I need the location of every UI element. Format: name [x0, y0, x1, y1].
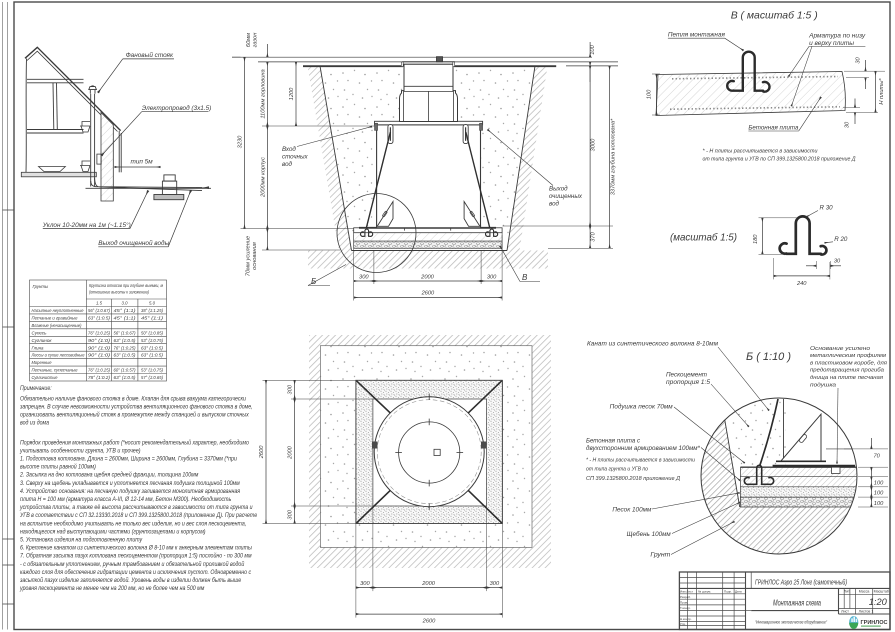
svg-text:2000: 2000 [421, 581, 435, 587]
svg-text:Пескоцемент: Пескоцемент [666, 372, 707, 379]
svg-text:Пров.: Пров. [680, 600, 688, 604]
svg-text:30: 30 [856, 57, 862, 64]
svg-text:300: 300 [487, 275, 497, 281]
svg-text:тип 5м: тип 5м [131, 159, 154, 166]
svg-text:высоте плиты равной 100мм): высоте плиты равной 100мм) [20, 463, 96, 471]
svg-text:60мм: 60мм [246, 33, 252, 47]
svg-text:Порядок проведения монтажных р: Порядок проведения монтажных работ (*нос… [20, 439, 249, 447]
svg-text:на всплытие необходимо учитыв: на всплытие необходимо учитывать не толь… [20, 521, 246, 527]
svg-text:вод: вод [282, 161, 293, 168]
svg-text:370: 370 [590, 231, 596, 241]
svg-text:30: 30 [844, 121, 850, 128]
svg-text:и верху плиты: и верху плиты [809, 40, 854, 47]
svg-text:двухсторонним армированием 100: двухсторонним армированием 100мм* [586, 445, 701, 452]
svg-text:2600: 2600 [421, 291, 435, 297]
svg-text:В ( масштаб 1:5 ): В ( масштаб 1:5 ) [731, 9, 818, 21]
svg-text:Подп.: Подп. [724, 589, 732, 593]
svg-text:78° (1:0.2): 78° (1:0.2) [88, 375, 111, 380]
svg-text:Выход очищенной воды: Выход очищенной воды [98, 239, 169, 247]
svg-text:№ докум.: № докум. [698, 589, 711, 593]
svg-text:подушка: подушка [810, 382, 837, 388]
svg-text:* - Н плиты рассчитывается в з: * - Н плиты рассчитывается в зависимости [586, 457, 695, 463]
svg-text:Лессы и сухие лессовидные: Лессы и сухие лессовидные [31, 353, 86, 358]
svg-text:Песок 100мм: Песок 100мм [612, 506, 652, 513]
svg-text:Грунт: Грунт [650, 552, 670, 559]
svg-text:уровня пескоцемента не менее ч: уровня пескоцемента не менее чем на 200 … [19, 586, 204, 592]
svg-text:запрещен. В случае невозможнос: запрещен. В случае невозможности устройс… [19, 403, 253, 411]
svg-text:5.0: 5.0 [149, 301, 156, 306]
svg-text:3000: 3000 [590, 138, 596, 151]
svg-text:предотвращения прогиба: предотвращения прогиба [810, 368, 885, 374]
svg-text:вод: вод [549, 201, 560, 208]
svg-text:300: 300 [288, 384, 294, 394]
svg-text:Масштаб: Масштаб [874, 590, 889, 594]
svg-text:100: 100 [874, 480, 884, 486]
svg-text:70: 70 [874, 453, 881, 459]
svg-text:УГВ в соответствии с СП 32.133: УГВ в соответствии с СП 32.13330.2018 и … [19, 513, 257, 519]
svg-text:учитывать особенности грунта,: учитывать особенности грунта, УГВ и проч… [19, 448, 141, 454]
svg-text:3230: 3230 [238, 135, 244, 148]
svg-text:"Инновационное экологическое о: "Инновационное экологическое оборудовани… [755, 619, 827, 624]
svg-text:90° (1:0): 90° (1:0) [88, 338, 111, 343]
svg-text:Петля монтажная: Петля монтажная [668, 32, 726, 39]
svg-text:63° (1:0.5): 63° (1:0.5) [141, 353, 164, 358]
svg-text:в пластиковом коробе, для: в пластиковом коробе, для [810, 360, 888, 366]
svg-text:1200: 1200 [289, 87, 295, 100]
svg-text:38° (1:1.25): 38° (1:1.25) [141, 308, 164, 313]
svg-text:100: 100 [874, 501, 884, 507]
svg-text:Суглинистые: Суглинистые [32, 375, 59, 380]
svg-text:7. Обратная засыпка пазух котл: 7. Обратная засыпка пазух котлована песк… [20, 552, 252, 560]
svg-text:1. Подготовка котлована. Длина: 1. Подготовка котлована. Длина = 2600мм,… [20, 456, 238, 462]
svg-text:Бетонная плита с: Бетонная плита с [586, 437, 641, 444]
svg-text:вод из дома: вод из дома [20, 420, 49, 426]
svg-text:56° (1:0.67): 56° (1:0.67) [114, 330, 137, 335]
svg-text:плита Н = 100 мм (арматура кла: плита Н = 100 мм (арматура класса А-III,… [20, 497, 231, 503]
svg-text:6. Крепление канатом из синтет: 6. Крепление канатом из синтетического в… [20, 545, 253, 551]
svg-text:300: 300 [359, 275, 369, 281]
svg-text:Выход: Выход [549, 186, 568, 193]
svg-text:Б ( 1:10 ): Б ( 1:10 ) [746, 351, 791, 363]
svg-text:50° (1:0.85): 50° (1:0.85) [141, 330, 164, 335]
svg-text:от типа грунта и УГВ по: от типа грунта и УГВ по [586, 467, 648, 473]
svg-text:300: 300 [490, 581, 500, 587]
svg-text:4. Устройство основания: на пе: 4. Устройство основания: на песчаную под… [20, 488, 240, 496]
svg-text:пропорция 1:5: пропорция 1:5 [666, 379, 711, 386]
svg-text:очищенных: очищенных [549, 193, 583, 200]
svg-text:Утв.: Утв. [680, 622, 686, 626]
svg-text:2000мм корпус: 2000мм корпус [261, 157, 267, 198]
svg-text:Монтажная схема: Монтажная схема [773, 598, 821, 607]
svg-text:Изм.Лист: Изм.Лист [680, 589, 694, 593]
svg-text:300: 300 [288, 509, 294, 519]
svg-text:300: 300 [360, 581, 370, 587]
svg-text:Насыпные неуплотненные: Насыпные неуплотненные [32, 308, 85, 313]
svg-text:76° (1:0.25): 76° (1:0.25) [88, 368, 111, 373]
svg-text:Подушка песок 70мм: Подушка песок 70мм [610, 403, 674, 410]
svg-text:Уклон 10-20мм на 1м (~1.15°): Уклон 10-20мм на 1м (~1.15°) [42, 221, 131, 229]
svg-text:63° (1:0.5): 63° (1:0.5) [114, 353, 137, 358]
svg-text:3.0: 3.0 [122, 301, 129, 306]
svg-text:каждого слоя для обеспечения г: каждого слоя для обеспечения гидратации … [20, 570, 251, 576]
svg-text:30: 30 [834, 258, 841, 264]
svg-text:Канат из синтетического волокн: Канат из синтетического волокна 8-10мм [587, 341, 719, 348]
svg-text:Песчаные, супесчаные: Песчаные, супесчаные [32, 368, 79, 373]
svg-text:засыпкой пазух изделие заполня: засыпкой пазух изделие заполняется водой… [19, 577, 241, 585]
svg-text:70мм усиление: 70мм усиление [246, 236, 252, 276]
svg-text:3. Сверху на щебень укладывает: 3. Сверху на щебень укладывается и уплот… [20, 479, 240, 487]
svg-text:100: 100 [590, 44, 596, 54]
svg-text:СП 399.1325800.2018 приложение: СП 399.1325800.2018 приложение Д [586, 476, 681, 482]
svg-text:(масштаб 1:5): (масштаб 1:5) [670, 232, 737, 244]
svg-text:76° (1:0.25): 76° (1:0.25) [88, 330, 111, 335]
svg-text:63° (1:0.5): 63° (1:0.5) [114, 338, 137, 343]
svg-text:53° (1:0.75): 53° (1:0.75) [141, 368, 164, 373]
svg-text:Арматура по низу: Арматура по низу [808, 33, 866, 40]
svg-text:2600: 2600 [259, 445, 265, 459]
svg-text:100: 100 [874, 491, 884, 497]
svg-text:R 20: R 20 [834, 236, 848, 243]
svg-text:45° (1:1): 45° (1:1) [141, 316, 164, 321]
svg-text:Суглинок: Суглинок [32, 338, 53, 343]
svg-text:R 30: R 30 [820, 205, 834, 212]
svg-text:180: 180 [753, 234, 759, 244]
svg-text:Крутизна откосов при глубине в: Крутизна откосов при глубине выемки, м [89, 283, 163, 288]
svg-text:2600: 2600 [422, 618, 436, 624]
svg-text:45° (1:1): 45° (1:1) [114, 308, 137, 313]
svg-text:Супесь: Супесь [32, 330, 48, 335]
svg-text:Н плиты*: Н плиты* [879, 78, 885, 105]
svg-text:Листов 1: Листов 1 [859, 610, 874, 614]
svg-text:Грунты: Грунты [33, 284, 49, 289]
svg-text:Н.контр.: Н.контр. [680, 617, 692, 621]
svg-text:Вход: Вход [282, 146, 296, 153]
svg-text:63° (1:0.5): 63° (1:0.5) [141, 345, 164, 350]
svg-text:1100мм горловина: 1100мм горловина [261, 69, 267, 118]
svg-text:(отношение высоты к заложению): (отношение высоты к заложению) [89, 290, 149, 295]
svg-text:76° (1:0.25): 76° (1:0.25) [114, 345, 137, 350]
svg-text:Лист: Лист [841, 610, 849, 614]
svg-text:Примечание:: Примечание: [20, 386, 52, 392]
svg-text:Моренные: Моренные [32, 360, 53, 365]
svg-text:90° (1:0): 90° (1:0) [88, 345, 111, 350]
svg-text:металлическим профилем: металлическим профилем [810, 353, 886, 359]
svg-text:1:20: 1:20 [869, 597, 888, 607]
svg-text:90° (1:0): 90° (1:0) [88, 353, 111, 358]
svg-text:Бетонная плита: Бетонная плита [748, 125, 799, 132]
svg-text:2000: 2000 [420, 275, 434, 281]
svg-text:* - Н плиты рассчитывается в з: * - Н плиты рассчитывается в зависимости [703, 148, 818, 154]
svg-text:- с обязательным уплотнением,: - с обязательным уплотнением, ручным тра… [20, 560, 245, 568]
svg-text:100: 100 [647, 89, 653, 99]
svg-text:Основание усилено: Основание усилено [810, 346, 871, 352]
svg-text:Влажные (ненасыщенные): Влажные (ненасыщенные) [32, 323, 83, 328]
svg-text:Обязательно наличие фанового с: Обязательно наличие фанового стояка в до… [20, 396, 247, 402]
svg-text:Т.контр.: Т.контр. [680, 606, 691, 610]
svg-text:днища на плите песчаная: днища на плите песчаная [810, 375, 884, 381]
svg-text:ГРИНЛОС Аэро 25 Лонг (самотечн: ГРИНЛОС Аэро 25 Лонг (самотечный) [755, 577, 847, 586]
svg-text:1.5: 1.5 [96, 301, 103, 306]
svg-text:56° (1:0.67): 56° (1:0.67) [88, 308, 111, 313]
svg-text:53° (1:0.75): 53° (1:0.75) [141, 338, 164, 343]
svg-text:Дата: Дата [735, 589, 742, 593]
svg-text:Разраб.: Разраб. [680, 595, 691, 599]
svg-text:основания: основания [252, 242, 258, 270]
svg-text:В: В [522, 273, 528, 282]
svg-text:устройства плиты, а также её в: устройства плиты, а также её высота расс… [19, 504, 253, 512]
svg-text:63° (1:0.5): 63° (1:0.5) [88, 316, 111, 321]
svg-text:Электропровод (3х1.5): Электропровод (3х1.5) [142, 104, 212, 112]
svg-text:находящегося над выступающими: находящегося над выступающими частями (г… [20, 529, 206, 535]
svg-text:ГРИНЛОС: ГРИНЛОС [861, 620, 888, 626]
svg-text:Глина: Глина [32, 345, 45, 350]
svg-text:5. Установка изделия на подгот: 5. Установка изделия на подготовленную п… [20, 537, 143, 543]
svg-text:2. Засыпка на дно котлована ще: 2. Засыпка на дно котлована щебня средне… [19, 471, 198, 479]
svg-text:Щебень 100мм: Щебень 100мм [627, 531, 672, 538]
svg-text:Масса: Масса [859, 590, 870, 594]
svg-text:3370мм глубина котлована*: 3370мм глубина котлована* [611, 118, 617, 195]
svg-text:Фановый стояк: Фановый стояк [126, 51, 174, 59]
svg-text:2000: 2000 [288, 445, 294, 459]
svg-text:от типа грунта и УГВ по СП 399: от типа грунта и УГВ по СП 399.1325800.2… [703, 156, 856, 162]
svg-text:сточных: сточных [282, 154, 309, 161]
svg-text:45° (1:1): 45° (1:1) [114, 316, 137, 321]
svg-text:организовать вентиляционный ст: организовать вентиляционный стояк в пром… [20, 411, 250, 419]
svg-text:60° (1:0.57): 60° (1:0.57) [114, 368, 137, 373]
svg-text:Песчаные и гравийные: Песчаные и гравийные [32, 316, 79, 321]
svg-text:Лит.: Лит. [844, 590, 851, 594]
svg-text:57° (1:0.65): 57° (1:0.65) [141, 375, 164, 380]
svg-text:240: 240 [796, 281, 807, 287]
svg-text:газон: газон [253, 32, 259, 48]
svg-text:63° (1:0.5): 63° (1:0.5) [114, 375, 137, 380]
